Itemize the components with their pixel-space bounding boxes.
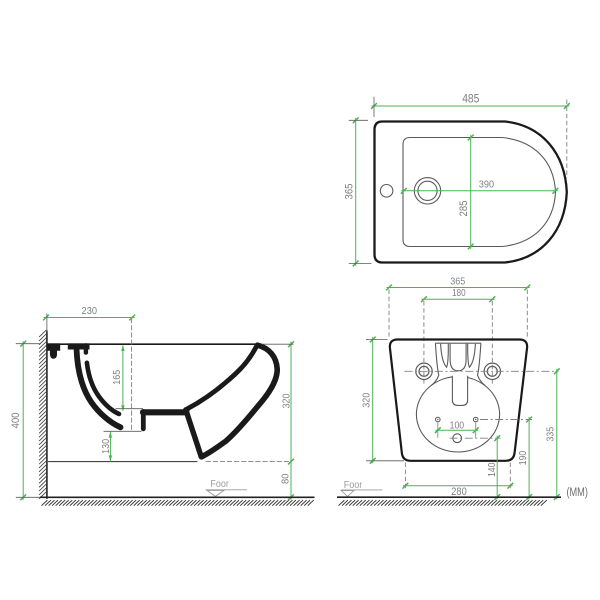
svg-text:365: 365 [450,275,465,287]
svg-text:130: 130 [100,439,112,454]
svg-text:485: 485 [462,91,479,105]
svg-text:190: 190 [518,450,529,465]
svg-text:390: 390 [479,178,494,190]
svg-text:320: 320 [280,393,292,408]
svg-text:Foor: Foor [344,480,363,491]
svg-text:285: 285 [458,201,470,217]
svg-text:140: 140 [487,462,498,477]
svg-text:(MM): (MM) [566,487,588,499]
svg-text:Foor: Foor [210,479,229,490]
svg-text:320: 320 [361,393,373,408]
svg-text:180: 180 [452,287,466,299]
svg-text:365: 365 [344,184,356,200]
svg-text:335: 335 [545,427,556,442]
svg-text:80: 80 [280,473,292,484]
svg-text:230: 230 [82,305,98,317]
svg-text:100: 100 [450,421,465,432]
svg-text:400: 400 [10,413,22,429]
svg-text:165: 165 [111,370,123,385]
